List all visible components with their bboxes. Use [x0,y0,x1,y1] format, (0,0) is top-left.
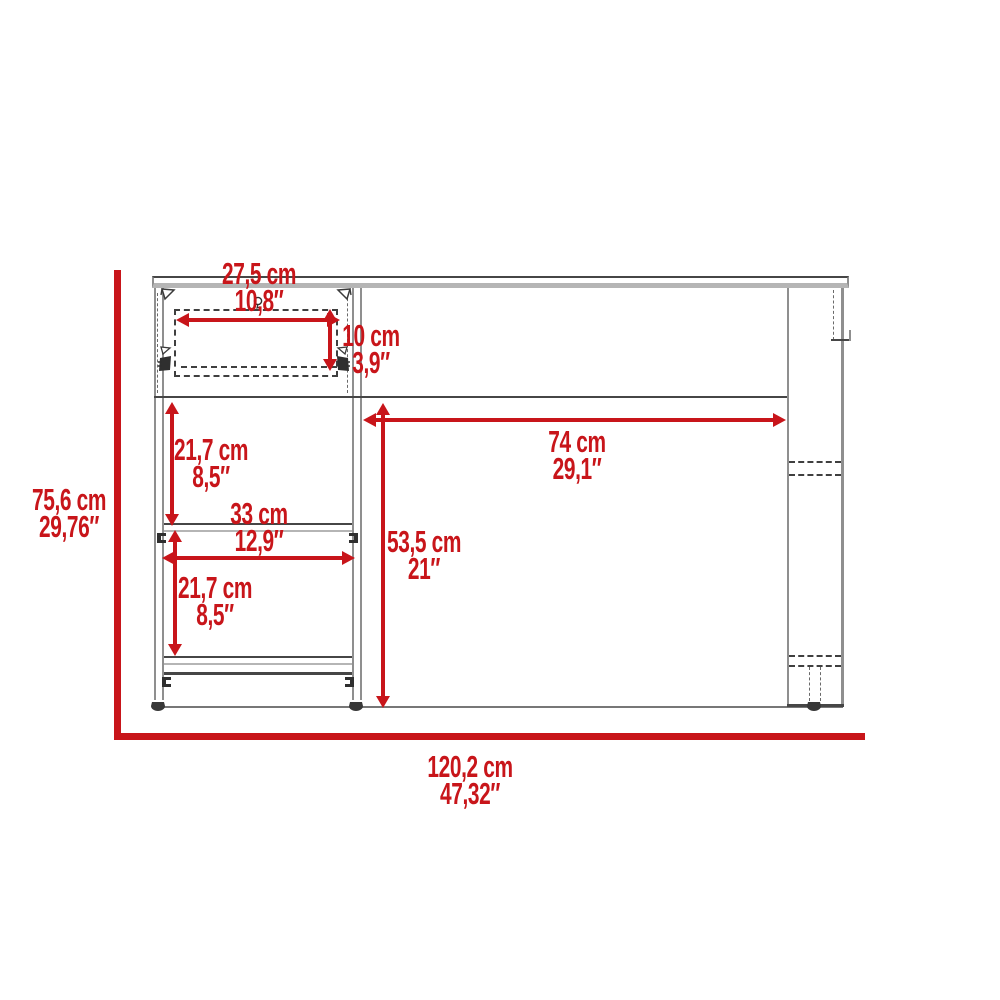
arrowhead-left [363,413,376,427]
arrowhead-left [176,313,189,327]
knee-space-width-in: 29,1″ [548,456,605,483]
leg-foot-hidden-line-b [820,667,821,701]
overall-width-label: 120,2 cm 47,32″ [427,754,512,809]
corner-bracket-icon [336,287,352,307]
arrowhead-up [165,402,179,414]
floor-line [162,706,843,708]
upper-shelf-space-label: 21,7 cm 8,5″ [174,437,248,492]
drawer-bottom-hidden-line [181,366,337,368]
drawer-width-in: 10,8″ [222,288,296,315]
upper-shelf-space-in: 8,5″ [174,464,248,491]
knee-space-height-arrow [381,412,385,698]
arrowhead-down [323,359,337,371]
leg-hidden-line-4 [789,665,841,667]
leg-hidden-line-2 [789,474,841,476]
shelf-support-icon [161,676,173,694]
bottom-shelf [164,656,352,675]
corner-bracket-icon [160,287,176,307]
arrowhead-right [342,551,355,565]
knee-space-width-arrow [374,418,776,422]
drawer-height-arrow [328,317,332,363]
cabinet-left-panel-outer [154,288,156,700]
shelf-support-icon [156,532,168,550]
knee-space-height-in: 21″ [387,556,461,583]
knee-space-height-label: 53,5 cm 21″ [387,529,461,584]
leg-foot-hidden-line-a [809,667,810,701]
foot-glide-icon [348,699,364,717]
cam-lock-icon [158,346,174,377]
lower-shelf-space-arrow [173,538,177,648]
overall-width-extent-line [114,733,865,740]
bottom-shelf-inner-line [164,663,352,665]
shelf-support-icon [347,532,359,550]
overall-height-label: 75,6 cm 29,76″ [32,487,106,542]
arrowhead-up [376,403,390,415]
drawer-width-arrow [186,318,332,322]
overall-height-extent-line [114,270,121,740]
drawer-slide-hidden-line-left [157,293,158,393]
arrowhead-up [323,309,337,321]
arrowhead-down [168,644,182,656]
leg-left-edge [787,288,789,707]
arrowhead-up [168,530,182,542]
leg-right-edge [841,288,844,707]
leg-connector-line [831,339,851,341]
arrowhead-down [165,514,179,526]
overall-height-in: 29,76″ [32,514,106,541]
foot-glide-icon [150,699,166,717]
foot-glide-icon [806,699,822,717]
lower-shelf-space-label: 21,7 cm 8,5″ [178,575,252,630]
drawer-height-in: 3,9″ [342,350,399,377]
arrowhead-right [773,413,786,427]
leg-hidden-line-1 [789,461,841,463]
leg-connector-hidden-line [833,290,834,340]
drawer-width-label: 27,5 cm 10,8″ [222,261,296,316]
arrowhead-down [376,696,390,708]
drawer-height-label: 10 cm 3,9″ [342,323,399,378]
shelf-width-label: 33 cm 12,9″ [230,501,287,556]
overall-width-in: 47,32″ [427,781,512,808]
shelf-width-in: 12,9″ [230,528,287,555]
apron-bottom-line [154,396,788,398]
leg-hidden-line-3 [789,655,841,657]
knee-space-width-label: 74 cm 29,1″ [548,429,605,484]
leg-connector-tick [849,330,851,341]
shelf-support-icon [343,676,355,694]
desk-dimension-diagram: 75,6 cm 29,76″ 120,2 cm 47,32″ 27,5 cm 1… [0,0,1000,1000]
lower-shelf-space-in: 8,5″ [178,602,252,629]
